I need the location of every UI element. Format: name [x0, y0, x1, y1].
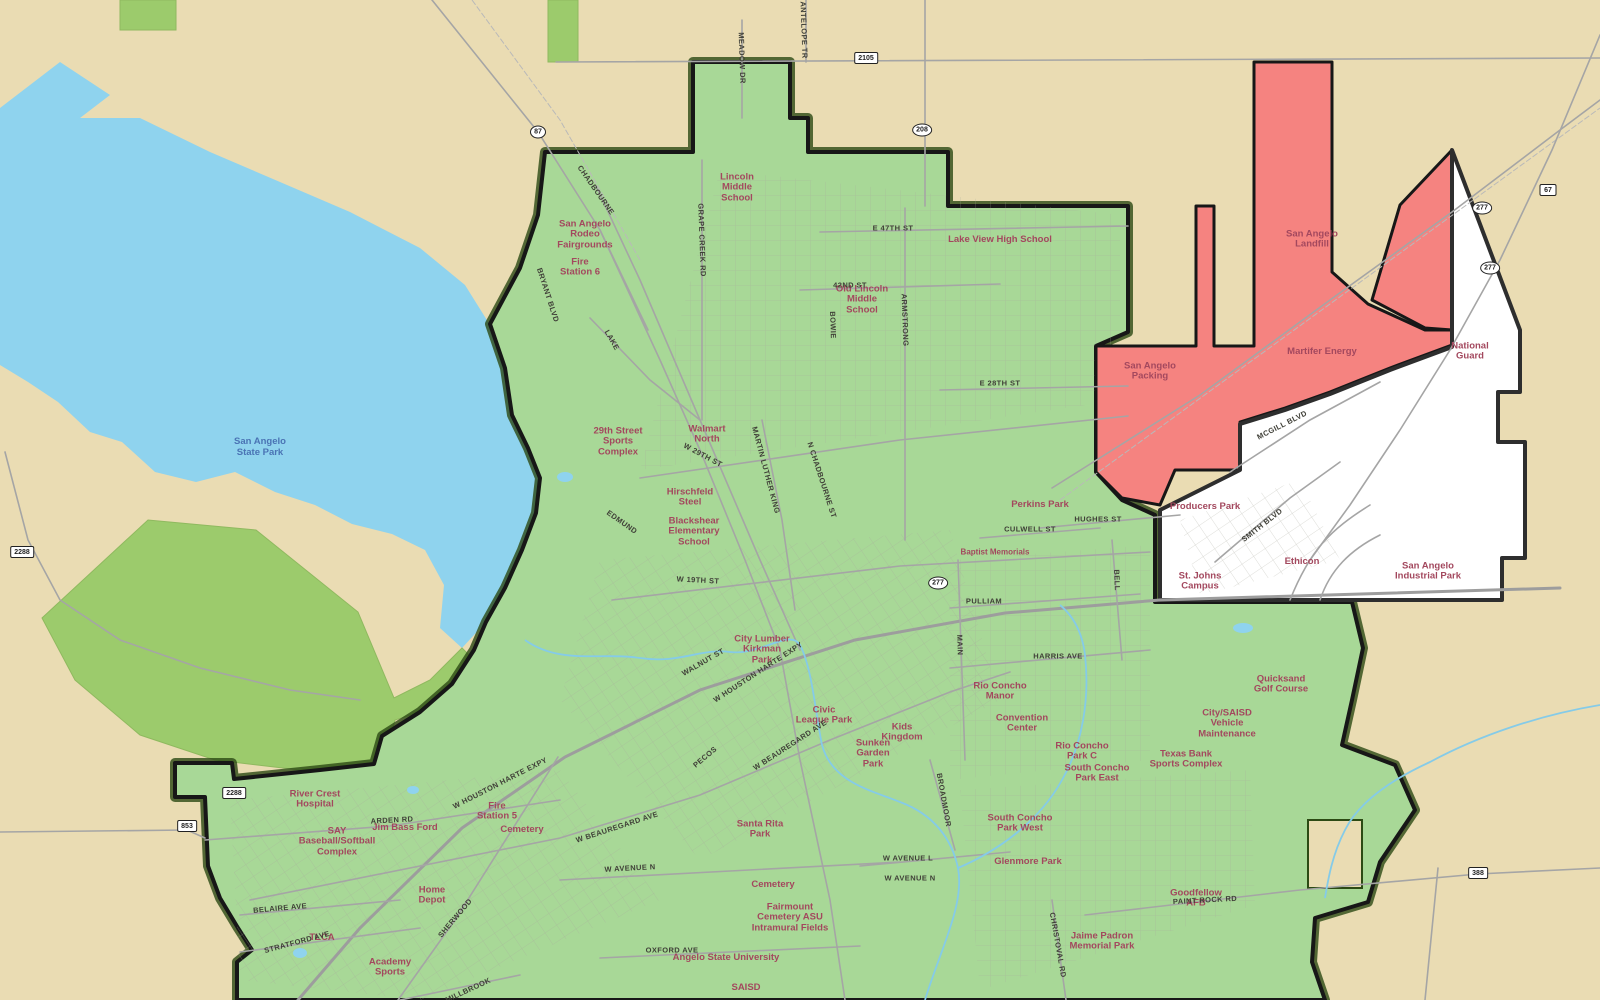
map-shapes-layer [0, 0, 1600, 1000]
route-shield: 208 [912, 124, 932, 137]
park-patch-northwest [120, 0, 176, 30]
route-shield: 388 [1468, 867, 1488, 879]
route-shield: 277 [1480, 262, 1500, 275]
route-shield: 2288 [10, 546, 34, 558]
route-shield: 853 [177, 820, 197, 832]
route-shield: 87 [530, 126, 546, 139]
route-shield: 67 [1540, 184, 1557, 196]
route-shield: 277 [1472, 202, 1492, 215]
route-shield: 277 [928, 577, 948, 590]
city-limits-map: San Angelo State Park San Angelo Rodeo F… [0, 0, 1600, 1000]
route-shield: 2105 [854, 52, 878, 64]
route-shield: 2288 [222, 787, 246, 799]
park-strip-north [548, 0, 578, 62]
